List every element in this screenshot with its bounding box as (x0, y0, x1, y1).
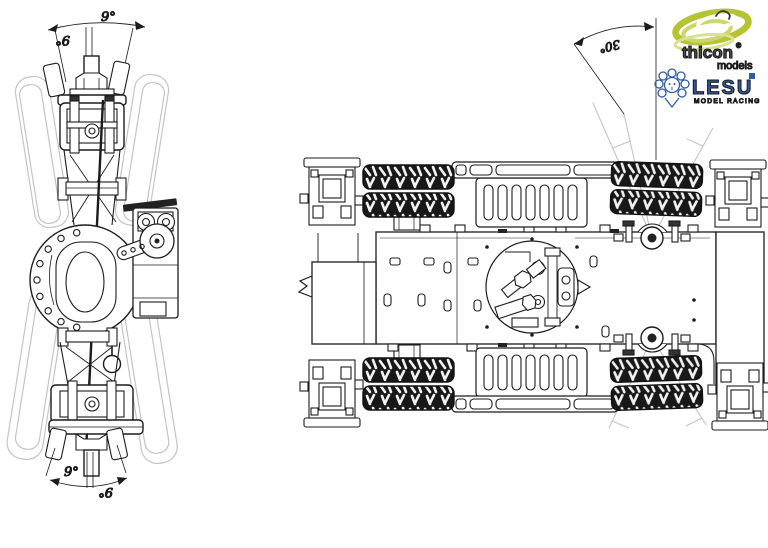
bracket-rear-right (708, 363, 768, 430)
thicon-tagline-text: models (717, 60, 753, 72)
side-rail-bottom (452, 396, 618, 412)
bracket-rear-left (300, 360, 363, 427)
blueprint-page: 9° 9° (0, 0, 768, 548)
bracket-front-left (300, 158, 363, 225)
axle-diff-housing (30, 225, 140, 335)
angle-label-axle-bottom-right: 9° (98, 484, 113, 499)
wheel-front-right (610, 355, 703, 410)
wheel-front-left (610, 161, 703, 216)
angle-label-axle-top-right: 9° (101, 10, 116, 25)
angle-label-axle-top-left: 9° (55, 32, 70, 47)
side-rail-top (452, 162, 618, 178)
angle-label-axle-bottom-left: 9° (64, 465, 79, 480)
logo-block: thicon ® models LESU MODEL RACING (655, 7, 761, 107)
tow-hook (299, 276, 312, 297)
bracket-front-right (706, 160, 768, 227)
steering-angle-dimension: 30° (574, 18, 656, 160)
lesu-brand-text: LESU (692, 77, 753, 99)
slotted-plate-bottom (476, 348, 587, 397)
wheel-rear-right (363, 358, 454, 410)
axle-lower-knuckle (45, 381, 143, 476)
thicon-registered-mark: ® (736, 42, 742, 50)
lesu-tagline-text: MODEL RACING (694, 98, 761, 105)
slotted-plate-top (476, 178, 587, 227)
front-axle-view: 9° 9° (5, 10, 180, 499)
axle-upper-knuckle (43, 56, 130, 153)
angle-label-steering: 30° (598, 37, 622, 55)
wheel-rear-left (363, 165, 454, 217)
lesu-registered-mark-box (749, 73, 755, 79)
technical-drawing-canvas: 9° 9° (0, 0, 768, 548)
lesu-lion-icon (655, 69, 689, 107)
